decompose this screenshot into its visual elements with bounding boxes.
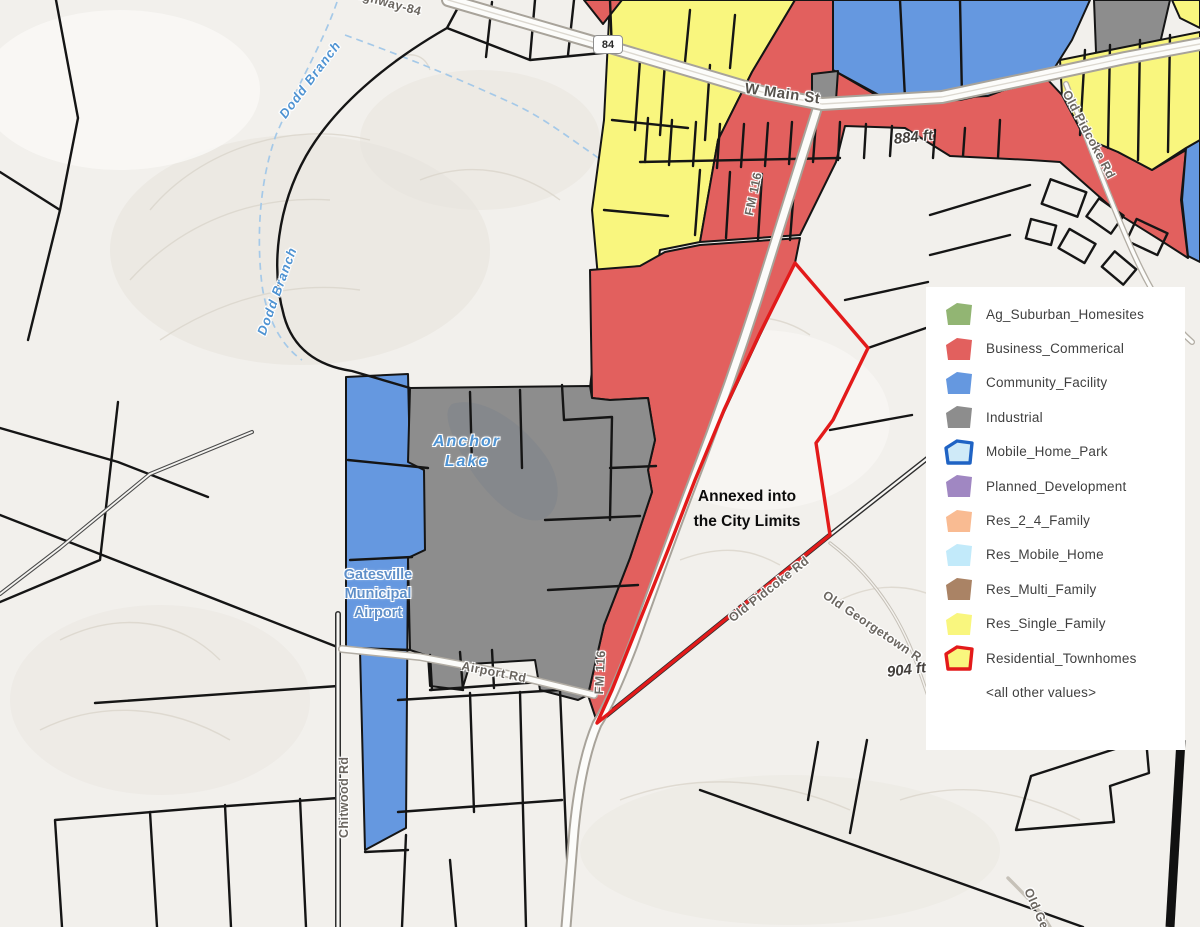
anchor-lake-label: Anchor Lake bbox=[412, 432, 522, 472]
legend-item: Planned_Development bbox=[944, 469, 1185, 503]
legend-swatch bbox=[944, 439, 974, 465]
legend-swatch bbox=[944, 404, 974, 430]
legend-item: Residential_Townhomes bbox=[944, 641, 1185, 675]
legend-item: Res_Multi_Family bbox=[944, 572, 1185, 606]
legend-item: Ag_Suburban_Homesites bbox=[944, 297, 1185, 331]
legend-swatch bbox=[944, 473, 974, 499]
legend-item-label: <all other values> bbox=[986, 685, 1096, 700]
legend-swatch bbox=[944, 611, 974, 637]
legend-item-label: Res_Mobile_Home bbox=[986, 547, 1104, 562]
legend-item-label: Res_2_4_Family bbox=[986, 513, 1090, 528]
legend-item: Res_2_4_Family bbox=[944, 503, 1185, 537]
legend-item: Res_Single_Family bbox=[944, 607, 1185, 641]
legend-item-label: Planned_Development bbox=[986, 479, 1126, 494]
gatesville-municipal-airport-label: Gatesville Municipal Airport bbox=[318, 566, 438, 623]
legend-item-label: Residential_Townhomes bbox=[986, 651, 1137, 666]
legend-item: <all other values> bbox=[944, 675, 1185, 709]
highway-84-shield: 84 bbox=[593, 35, 623, 54]
legend-item-label: Industrial bbox=[986, 410, 1043, 425]
legend-swatch bbox=[944, 645, 974, 671]
legend-item-label: Res_Single_Family bbox=[986, 616, 1106, 631]
legend-swatch bbox=[944, 679, 974, 705]
legend-item: Mobile_Home_Park bbox=[944, 435, 1185, 469]
chitwood-rd-label: Chitwood Rd bbox=[337, 757, 351, 838]
legend-item-label: Ag_Suburban_Homesites bbox=[986, 307, 1144, 322]
legend-swatch bbox=[944, 370, 974, 396]
legend-swatch bbox=[944, 508, 974, 534]
legend-swatch bbox=[944, 542, 974, 568]
zoning-map-canvas[interactable]: Highway-84 84 W Main St 884 ft 904 ft FM… bbox=[0, 0, 1200, 927]
legend-item-label: Community_Facility bbox=[986, 375, 1107, 390]
legend-item: Community_Facility bbox=[944, 366, 1185, 400]
annexed-city-limits-note: Annexed into the City Limits bbox=[680, 484, 814, 534]
fm116-label-south: FM 116 bbox=[592, 650, 608, 695]
legend-swatch bbox=[944, 336, 974, 362]
legend-item: Res_Mobile_Home bbox=[944, 538, 1185, 572]
legend-item-label: Res_Multi_Family bbox=[986, 582, 1096, 597]
legend-panel: Ag_Suburban_HomesitesBusiness_Commerical… bbox=[926, 287, 1185, 750]
legend-item-label: Mobile_Home_Park bbox=[986, 444, 1108, 459]
legend-item: Business_Commerical bbox=[944, 331, 1185, 365]
legend-item-label: Business_Commerical bbox=[986, 341, 1124, 356]
legend-swatch bbox=[944, 301, 974, 327]
legend-swatch bbox=[944, 576, 974, 602]
legend-item: Industrial bbox=[944, 400, 1185, 434]
